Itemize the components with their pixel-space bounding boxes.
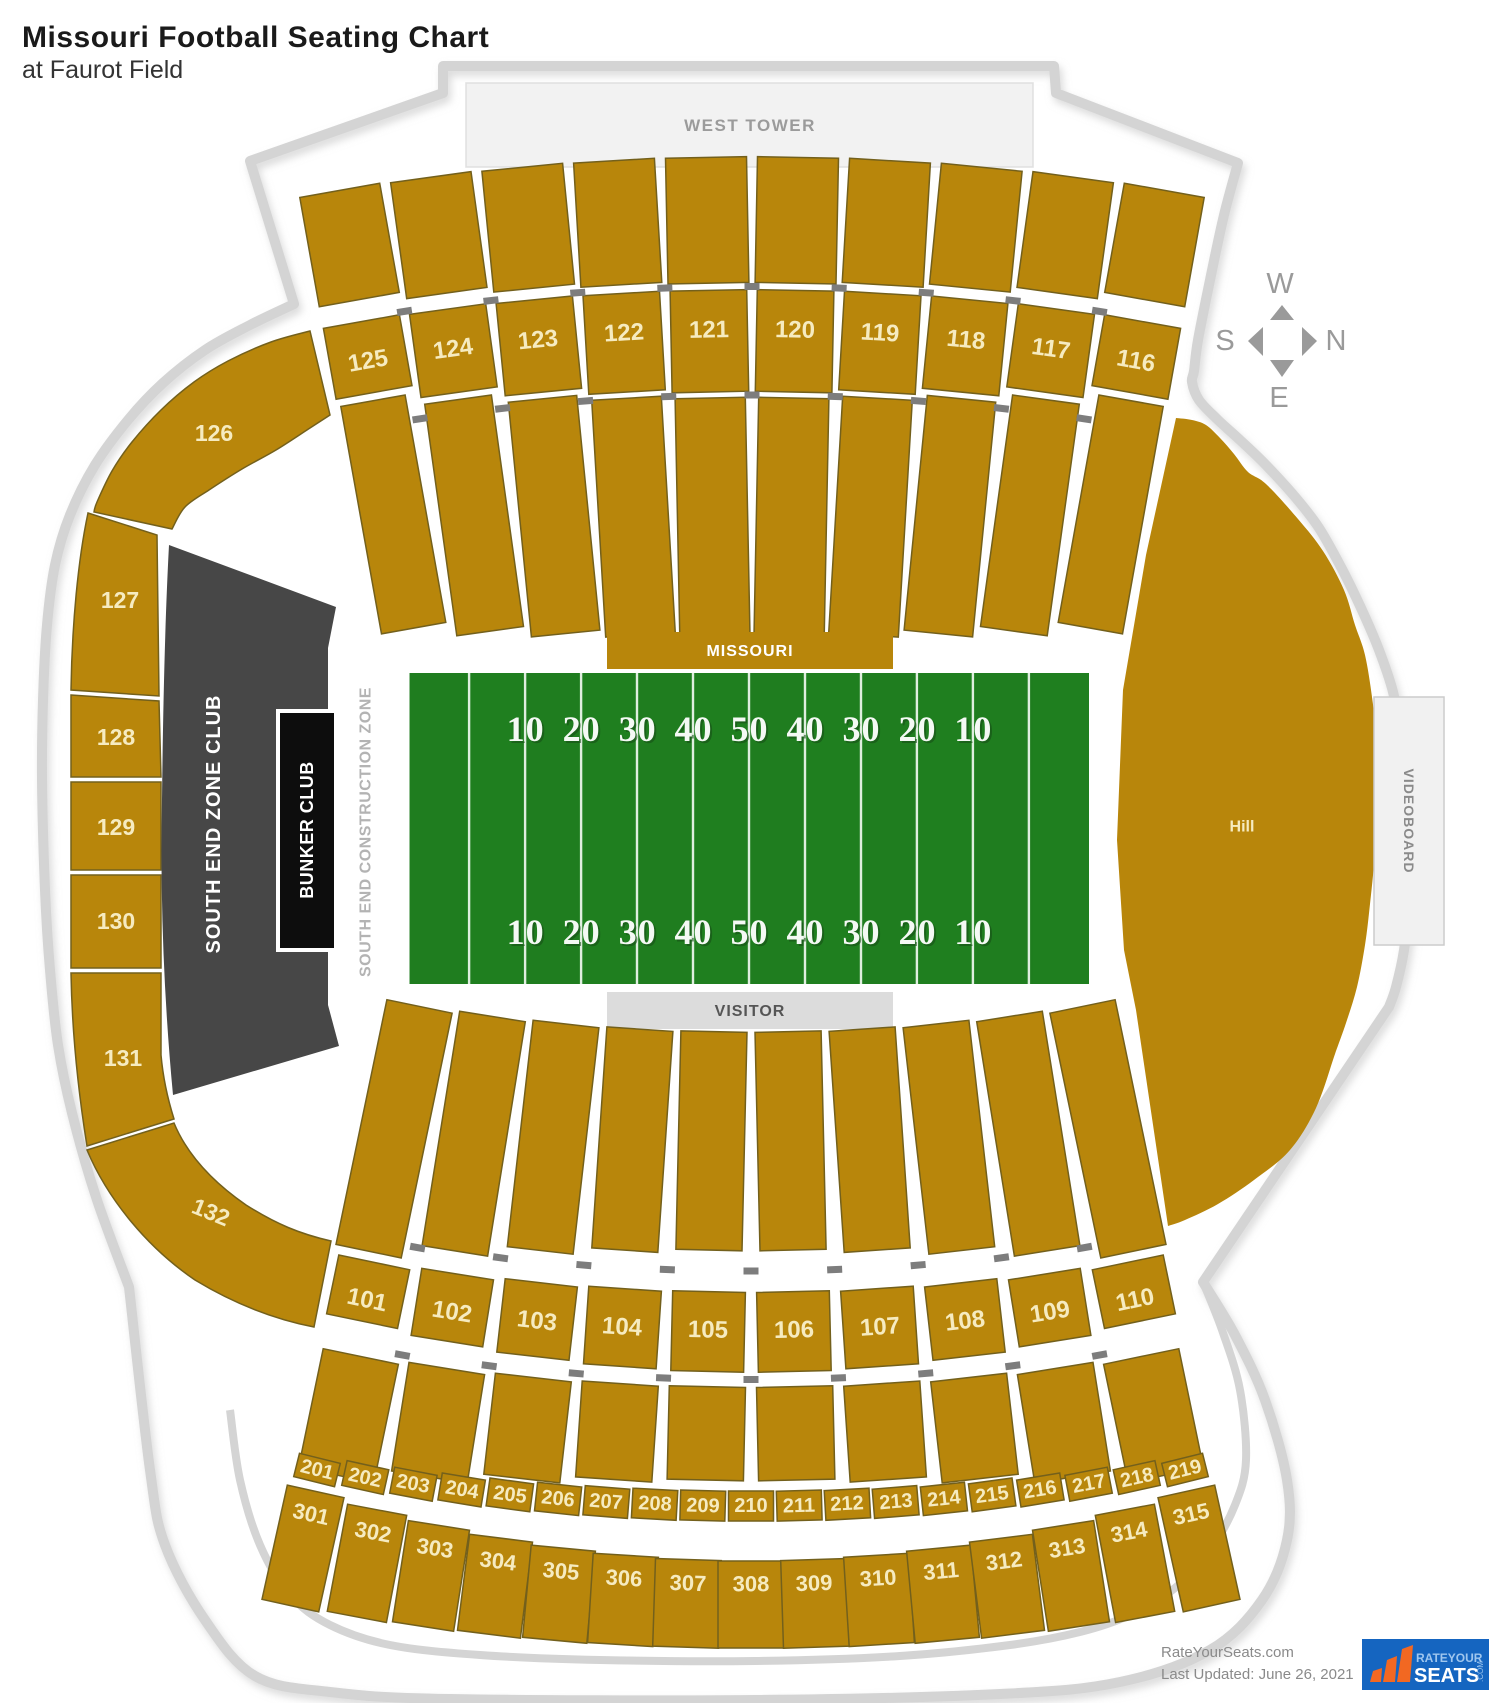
svg-text:10: 10	[507, 709, 545, 749]
svg-text:128: 128	[97, 724, 136, 750]
svg-text:30: 30	[843, 912, 881, 952]
svg-text:212: 212	[830, 1492, 865, 1516]
svg-text:Last Updated: June 26, 2021: Last Updated: June 26, 2021	[1161, 1666, 1354, 1683]
svg-text:307: 307	[669, 1570, 706, 1596]
svg-text:WEST TOWER: WEST TOWER	[684, 116, 816, 135]
svg-text:206: 206	[540, 1486, 576, 1511]
svg-text:Hill: Hill	[1230, 819, 1255, 836]
svg-text:123: 123	[517, 325, 559, 356]
svg-text:20: 20	[563, 912, 601, 952]
svg-text:at Faurot Field: at Faurot Field	[22, 56, 183, 84]
svg-text:308: 308	[733, 1572, 770, 1597]
svg-text:10: 10	[954, 912, 992, 952]
svg-text:105: 105	[688, 1316, 729, 1344]
svg-text:304: 304	[478, 1546, 518, 1575]
svg-text:124: 124	[431, 333, 475, 365]
svg-text:W: W	[1266, 268, 1294, 300]
svg-text:VIDEOBOARD: VIDEOBOARD	[1401, 769, 1417, 874]
svg-text:VISITOR: VISITOR	[715, 1003, 786, 1020]
svg-text:.COM: .COM	[1476, 1661, 1485, 1682]
svg-text:312: 312	[984, 1546, 1024, 1575]
svg-text:10: 10	[507, 912, 545, 952]
svg-text:50: 50	[731, 912, 769, 952]
svg-text:127: 127	[101, 587, 139, 613]
svg-text:118: 118	[945, 325, 986, 356]
svg-text:30: 30	[619, 912, 657, 952]
svg-text:RATEYOUR: RATEYOUR	[1416, 1651, 1483, 1665]
svg-text:40: 40	[787, 709, 825, 749]
svg-text:210: 210	[734, 1495, 767, 1517]
svg-text:RateYourSeats.com: RateYourSeats.com	[1161, 1644, 1294, 1661]
svg-text:SOUTH END CONSTRUCTION ZONE: SOUTH END CONSTRUCTION ZONE	[358, 687, 375, 977]
svg-text:211: 211	[783, 1495, 816, 1518]
svg-text:311: 311	[922, 1557, 960, 1585]
svg-text:215: 215	[974, 1482, 1010, 1508]
svg-text:120: 120	[775, 316, 816, 344]
svg-text:129: 129	[97, 814, 135, 840]
svg-text:122: 122	[603, 318, 645, 347]
svg-text:131: 131	[104, 1045, 143, 1071]
svg-text:213: 213	[878, 1490, 913, 1515]
svg-text:214: 214	[926, 1486, 962, 1512]
svg-text:S: S	[1215, 325, 1234, 357]
svg-text:117: 117	[1030, 333, 1072, 365]
svg-text:SEATS: SEATS	[1414, 1665, 1479, 1687]
svg-text:Missouri Football Seating Char: Missouri Football Seating Chart	[22, 21, 489, 54]
svg-text:107: 107	[859, 1312, 901, 1342]
svg-text:SOUTH END ZONE CLUB: SOUTH END ZONE CLUB	[203, 695, 225, 954]
svg-text:126: 126	[195, 420, 233, 446]
svg-text:208: 208	[638, 1492, 673, 1516]
svg-text:207: 207	[588, 1490, 623, 1515]
svg-text:103: 103	[516, 1305, 559, 1336]
svg-text:20: 20	[899, 912, 937, 952]
svg-text:305: 305	[542, 1557, 581, 1585]
svg-text:309: 309	[795, 1570, 832, 1596]
svg-text:30: 30	[619, 709, 657, 749]
svg-text:40: 40	[787, 912, 825, 952]
svg-text:30: 30	[843, 709, 881, 749]
svg-text:40: 40	[675, 709, 713, 749]
svg-text:N: N	[1326, 325, 1347, 357]
svg-text:310: 310	[859, 1564, 897, 1591]
svg-text:306: 306	[605, 1564, 643, 1591]
svg-text:121: 121	[689, 316, 730, 344]
svg-text:205: 205	[492, 1482, 528, 1508]
svg-text:BUNKER CLUB: BUNKER CLUB	[297, 761, 317, 899]
svg-text:20: 20	[563, 709, 601, 749]
svg-text:119: 119	[860, 318, 900, 347]
svg-text:130: 130	[97, 908, 135, 934]
svg-text:40: 40	[675, 912, 713, 952]
svg-text:106: 106	[774, 1316, 815, 1344]
svg-text:20: 20	[899, 709, 937, 749]
svg-text:108: 108	[944, 1305, 987, 1336]
svg-text:10: 10	[954, 709, 992, 749]
svg-text:209: 209	[686, 1495, 720, 1518]
svg-text:104: 104	[601, 1312, 643, 1342]
svg-text:E: E	[1269, 382, 1288, 414]
svg-text:MISSOURI: MISSOURI	[706, 643, 793, 660]
svg-text:50: 50	[731, 709, 769, 749]
